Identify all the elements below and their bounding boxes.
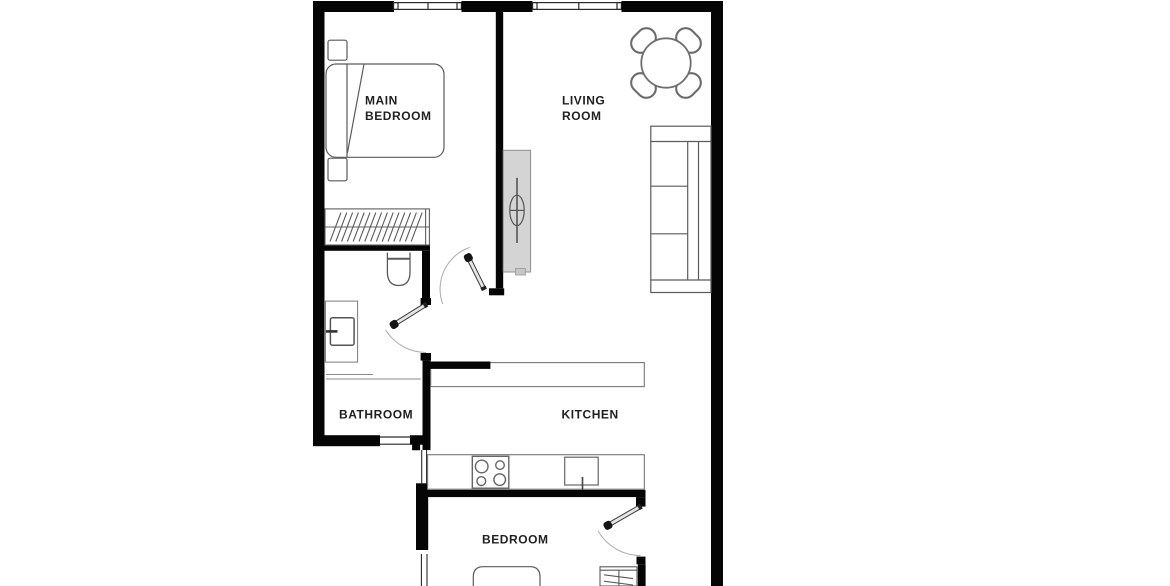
svg-text:LIVING: LIVING	[562, 94, 605, 108]
svg-text:KITCHEN: KITCHEN	[562, 408, 619, 422]
svg-text:MAIN: MAIN	[365, 94, 398, 108]
svg-text:ROOM: ROOM	[562, 109, 602, 123]
svg-text:BEDROOM: BEDROOM	[482, 532, 549, 546]
svg-text:BATHROOM: BATHROOM	[339, 408, 413, 422]
svg-text:BEDROOM: BEDROOM	[365, 109, 432, 123]
